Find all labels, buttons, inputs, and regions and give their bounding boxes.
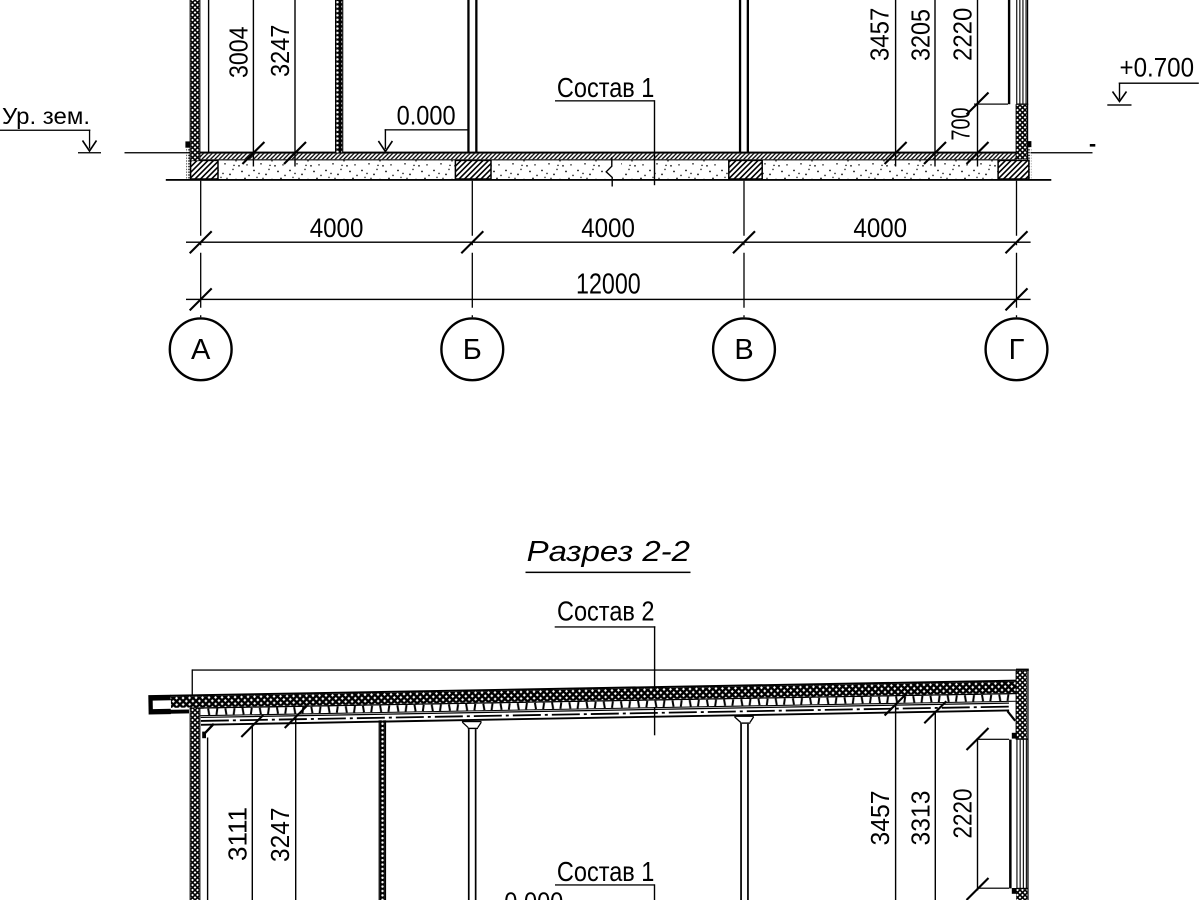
- svg-text:4000: 4000: [310, 213, 364, 243]
- svg-text:В: В: [734, 334, 753, 366]
- svg-text:0.000: 0.000: [397, 101, 456, 131]
- svg-text:0.000: 0.000: [504, 887, 563, 900]
- svg-text:3457: 3457: [867, 8, 895, 61]
- svg-text:12000: 12000: [576, 269, 641, 301]
- svg-text:А: А: [191, 334, 211, 366]
- svg-text:700: 700: [947, 108, 975, 141]
- svg-text:3457: 3457: [867, 791, 895, 846]
- svg-text:+0.700: +0.700: [1120, 53, 1195, 83]
- svg-text:4000: 4000: [853, 213, 907, 243]
- svg-text:3004: 3004: [225, 27, 253, 79]
- svg-text:Б: Б: [463, 334, 482, 366]
- svg-text:Состав 2: Состав 2: [557, 595, 655, 626]
- svg-text:3247: 3247: [267, 808, 295, 863]
- svg-text:Ур. зем.: Ур. зем.: [2, 103, 90, 129]
- svg-text:3313: 3313: [908, 791, 936, 846]
- svg-text:4000: 4000: [581, 213, 635, 243]
- svg-text:Г: Г: [1009, 334, 1025, 366]
- svg-text:2220: 2220: [949, 8, 977, 61]
- svg-text:3247: 3247: [267, 25, 295, 77]
- svg-text:Состав 1: Состав 1: [557, 856, 655, 887]
- svg-text:Разрез 2-2: Разрез 2-2: [527, 536, 690, 568]
- svg-text:Состав 1: Состав 1: [557, 72, 655, 103]
- svg-text:2220: 2220: [950, 789, 978, 839]
- svg-text:3205: 3205: [907, 9, 935, 61]
- svg-text:3111: 3111: [225, 807, 253, 861]
